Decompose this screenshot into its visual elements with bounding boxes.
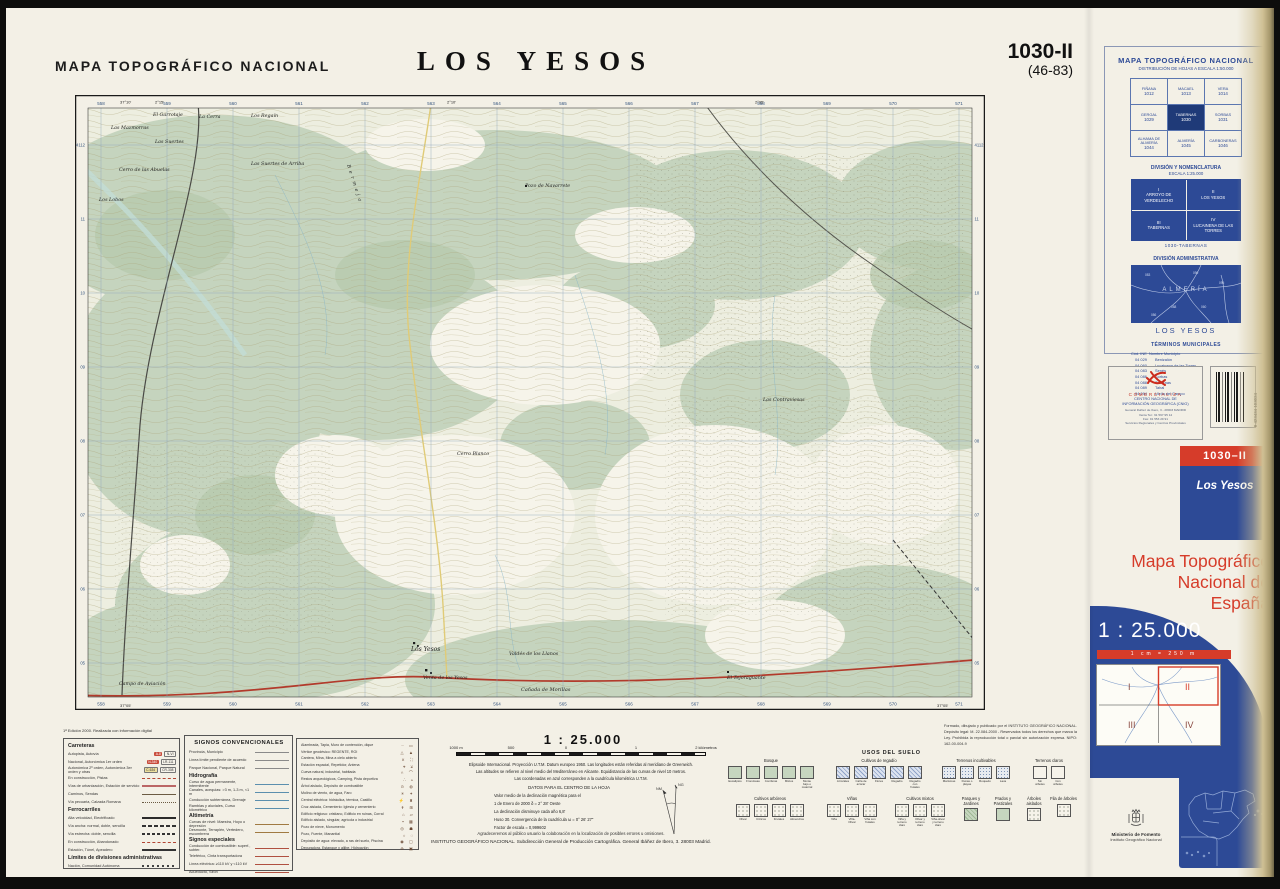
svg-text:561: 561 <box>295 101 303 106</box>
landuse-group: Terrenos incultivablesMarismasDunas o pl… <box>932 759 1020 786</box>
legend-item: Curvas de nivel: Maestra, Hoyo o depresi… <box>189 820 289 828</box>
svg-text:NM: NM <box>656 787 662 791</box>
nomenclatura-cell: IILOS YESOS <box>1187 180 1241 210</box>
footer-note: Agradeceremos al público usuario la cola… <box>221 831 921 836</box>
svg-text:569: 569 <box>823 702 831 707</box>
legend-symbol-item: Cruz aislada, Cementerio: Iglesia y ceme… <box>301 804 415 811</box>
svg-text:09: 09 <box>975 365 980 370</box>
landuse-group-name: Terrenos incultivables <box>932 759 1020 764</box>
landuse-swatch: Marismas <box>942 766 956 786</box>
legend-signs-box: SIGNOS CONVENCIONALESProvincia, Municipi… <box>184 735 293 871</box>
scale-label: 2 kilómetros <box>695 745 717 750</box>
landuse-group: Prados y Pastizales <box>988 797 1018 821</box>
edition-note: 1ª Edición 2000. Realizada con informaci… <box>63 728 152 733</box>
landuse-swatch-label: Viña-olivar y terreno claro <box>931 818 945 828</box>
landuse-swatch: Cítricos <box>754 804 768 821</box>
landuse-swatch: Almendros <box>790 804 804 821</box>
svg-text:10: 10 <box>80 291 85 296</box>
road-number-badge: A-8 <box>154 752 162 757</box>
svg-text:564: 564 <box>493 101 501 106</box>
legend-item: Conducción subterránea, Drenaje <box>189 796 289 804</box>
svg-text:08: 08 <box>975 439 980 444</box>
svg-text:563: 563 <box>427 702 435 707</box>
landuse-group: Fila de árboles <box>1050 797 1077 817</box>
svg-text:07: 07 <box>975 513 980 518</box>
landuse-swatch: Regadío <box>890 766 904 790</box>
landuse-swatch <box>964 808 978 821</box>
legend-symbol-glyphs: ⚡ ♜ <box>385 798 415 804</box>
svg-text:568: 568 <box>757 702 765 707</box>
landuse-swatch: Regadío con frutales <box>908 766 922 790</box>
legend-item: Vía ancha: normal, doble, sencilla <box>68 822 176 830</box>
landuse-group-name: Fila de árboles <box>1050 797 1077 802</box>
landuse-swatch: Olivar <box>736 804 750 821</box>
svg-text:560: 560 <box>229 702 237 707</box>
landuse-swatch: Frondosas <box>746 766 760 790</box>
svg-text:563: 563 <box>427 101 435 106</box>
landuse-group-name: Bosque <box>718 759 824 764</box>
quadrant-diagram: I II III IV <box>1096 664 1221 746</box>
landuse-group: ViñasViñaViña-OlivarViña con frutales <box>820 797 884 824</box>
legend-symbol-item: Árbol aislado, Depósito de combustible⊙ … <box>301 783 415 790</box>
admin-code: 088 <box>1171 305 1176 309</box>
admin-code: 086 <box>1151 313 1156 317</box>
map-place-label: Pozo de Navarrete <box>524 183 570 189</box>
legend-symbol-item: Edificio aislado, singular, agrícola o i… <box>301 818 415 825</box>
legend-group-title: Carreteras <box>68 743 176 749</box>
legend-item: Provincia, Municipio <box>189 748 289 756</box>
legend-symbol-glyphs: ✝ ⊞ <box>385 805 415 810</box>
page-curl-edge <box>1237 8 1274 877</box>
map-place-label: El Garrotaje <box>152 112 183 118</box>
landuse-group-name: Viñas <box>820 797 884 802</box>
landuse-swatch: Viña <box>827 804 841 824</box>
landuse-swatch <box>1027 808 1041 821</box>
landuse-swatch-label: Viña <box>827 818 841 821</box>
imprint-block: Formado, dibujado y publicado por el INS… <box>944 723 1077 747</box>
legend-item: Canales, acequias: >3 m, 1-3 m, <1 m <box>189 788 289 796</box>
svg-text:NG: NG <box>678 783 684 787</box>
landuse-swatch <box>1057 804 1071 817</box>
legend-group-title: Ferrocarriles <box>68 807 176 813</box>
legend-symbol-item: Vértice geodésico: REGENTE, ROI△ ▲ <box>301 749 415 756</box>
legend-item: Línea eléctrica: ≥110 kV y <110 kV <box>189 860 289 868</box>
map-place-label: La Cerra <box>198 114 221 120</box>
distribution-cell: GERGAL1029 <box>1131 105 1168 131</box>
landuse-swatch-label: Mixtos <box>782 780 796 783</box>
scale-value: 1 : 25.000 <box>1098 619 1201 643</box>
landuse-group: Cultivos mixtosViña y terreno claroOliva… <box>886 797 954 827</box>
svg-text:09: 09 <box>80 365 85 370</box>
legend-symbol-glyphs: ⌂ ▱ <box>385 812 415 817</box>
sheet-number-block: 1030-II (46-83) <box>961 41 1073 78</box>
landuse-swatch: Olivar y terreno claro <box>913 804 927 828</box>
landuse-swatch: Frutales <box>772 804 786 821</box>
legend-item: Alta velocidad, Electrificado <box>68 814 176 822</box>
svg-text:566: 566 <box>625 101 633 106</box>
landuse-group: Cultivos de regadíoArrozalesCaña de azúc… <box>828 759 930 789</box>
landuse-swatch: Roquedo <box>978 766 992 786</box>
landuse-swatch: Arrozales <box>836 766 850 790</box>
road-number-badge: N-VI <box>164 751 176 758</box>
legend-symbol-item: Alambrada, Tapia, Muro de contención, di… <box>301 742 415 749</box>
landuse-swatch <box>996 808 1010 821</box>
signs-title: SIGNOS CONVENCIONALES <box>189 740 289 746</box>
map-place-label: Cerro de las Abuelas <box>119 167 170 173</box>
road-number-badge: C-634 <box>144 767 158 774</box>
landuse-swatch-label: Coníferas <box>764 780 778 783</box>
landuse-group: Terrenos clarosSin árbolesCon árboles <box>1022 759 1076 786</box>
map-place-label: Valdés de los Llanos <box>509 650 559 657</box>
landuse-group: Parques y Jardines <box>956 797 986 821</box>
ministry-block: Ministerio de Fomento Instituto Geográfi… <box>1086 808 1186 842</box>
svg-text:564: 564 <box>493 702 501 707</box>
legend-item: Vía pecuaria, Calzada Romana <box>68 798 176 806</box>
distribution-cell: MACAEL1013 <box>1168 79 1205 105</box>
map-place-label: Cerro Blanco <box>457 451 489 457</box>
svg-text:4112: 4112 <box>975 143 985 148</box>
svg-text:567: 567 <box>691 101 699 106</box>
landuse-swatch-label: Almendros <box>790 818 804 821</box>
cnig-swoosh-icon <box>1145 370 1167 386</box>
datos-title: DATOS PARA EL CENTRO DE LA HOJA <box>494 785 644 790</box>
legend-item: Conducción de combustible: superf., subt… <box>189 844 289 852</box>
landuse-group-name: Prados y Pastizales <box>988 797 1018 806</box>
admin-code: 060 <box>1201 305 1206 309</box>
legend-symbol-item: Molino de viento, de agua, Faro✳ ✦ <box>301 790 415 797</box>
svg-text:10: 10 <box>975 291 980 296</box>
sheet-distribution-grid: FIÑANA1012MACAEL1013VERA1014GERGAL1029TA… <box>1130 78 1242 157</box>
landuse-swatch-label: Olivar <box>736 818 750 821</box>
landuse-group: Cultivos arbóreosOlivarCítricosFrutalesA… <box>722 797 818 821</box>
institute-name: Instituto Geográfico Nacional <box>1086 837 1186 842</box>
svg-text:06: 06 <box>80 587 85 592</box>
map-place-label: Los Lobos <box>98 197 124 203</box>
scale-bar-labels: 1000 m500012 kilómetros <box>456 745 706 751</box>
landuse-swatch-label: Arrozales <box>836 780 850 783</box>
distribution-cell: VERA1014 <box>1205 79 1242 105</box>
legend-symbol-glyphs: ▪ ▦ <box>385 819 415 824</box>
admin-code: 083 <box>1145 273 1150 277</box>
landuse-swatch-label: Frondosas <box>746 780 760 783</box>
map-place-label: Los Regaín <box>250 112 278 119</box>
cnig-org-2: INFORMACIÓN GEOGRÁFICA (CNIG) <box>1109 402 1202 407</box>
scale-label: 1000 m <box>449 745 462 750</box>
svg-text:2°05': 2°05' <box>755 100 764 105</box>
cnig-address: General Ibáñez de Ibero, 3 - 28003 MADRI… <box>1109 408 1202 425</box>
svg-text:05: 05 <box>80 661 85 666</box>
svg-text:37°05': 37°05' <box>937 703 948 708</box>
landuse-title: USOS DEL SUELO <box>862 750 982 756</box>
map-place-label: Campo de Aviación <box>119 680 166 687</box>
legend-item: Ramblas y aluviales, Curso kilométrico <box>189 804 289 812</box>
landuse-swatch-label: Dunas o playas <box>960 780 974 786</box>
admin-code: 095 <box>1219 281 1224 285</box>
legend-item: En construcción, Abandonado <box>68 838 176 846</box>
nomenclatura-cell: IVLUCAINENA DE LAS TORRES <box>1187 211 1241 241</box>
svg-text:560: 560 <box>229 101 237 106</box>
svg-text:562: 562 <box>361 101 369 106</box>
svg-text:2°10': 2°10' <box>447 100 456 105</box>
distribution-cell: CARBONERAS1046 <box>1205 131 1242 157</box>
scale-label: 0 <box>565 745 567 750</box>
legend-symbol-glyphs: ⊕ ▣ <box>385 846 415 851</box>
admin-region-label: ALMERÍA <box>1131 287 1241 293</box>
landuse-swatch-label: Viña y terreno claro <box>895 818 909 828</box>
svg-text:567: 567 <box>691 702 699 707</box>
svg-text:559: 559 <box>163 101 171 106</box>
legend-item: Estación, Túnel, Apeadero <box>68 846 176 854</box>
landuse-swatch-label: Marismas <box>942 780 956 783</box>
svg-text:561: 561 <box>295 702 303 707</box>
landuse-swatch-label: Eucaliptos <box>728 780 742 783</box>
landuse-swatch: Eucaliptos <box>728 766 742 790</box>
svg-text:562: 562 <box>361 702 369 707</box>
topographic-map: El GarrotajeLa CerraLos RegaínLas Mazmor… <box>75 95 985 710</box>
road-number-badge: CR-308 <box>160 767 176 774</box>
distribution-cell: ALHAMA DE ALMERÍA1044 <box>1131 131 1168 157</box>
landuse-swatch: Sin árboles <box>1033 766 1047 786</box>
svg-text:570: 570 <box>889 702 897 707</box>
distribution-cell: FIÑANA1012 <box>1131 79 1168 105</box>
cnig-panel: COMERCIALIZA CENTRO NACIONAL DE INFORMAC… <box>1108 366 1203 440</box>
footer-imprint: INSTITUTO GEOGRÁFICO NACIONAL. Subdirecc… <box>181 839 961 844</box>
svg-text:11: 11 <box>81 217 86 222</box>
legend-symbol-glyphs: ⊙ ◍ <box>385 784 415 789</box>
landuse-swatch: Lava <box>996 766 1010 786</box>
landuse-swatch-label: Flores <box>872 780 886 783</box>
svg-text:05: 05 <box>975 661 980 666</box>
admin-code: 090 <box>1193 271 1198 275</box>
legend-roads-box: CarreterasAutopista, AutovíaA-8N-VINacio… <box>63 738 180 869</box>
sheet-code: (46-83) <box>961 63 1073 78</box>
svg-text:37°10': 37°10' <box>120 100 131 105</box>
landuse-swatch-label: Cítricos <box>754 818 768 821</box>
nomenclatura-grid: IARROYO DE VERDELECHOIILOS YESOSIIITABER… <box>1131 179 1241 241</box>
landuse-swatch: Caña de azúcar <box>854 766 868 790</box>
legend-item: Autonómica 2º orden, Autonómica 3er orde… <box>68 766 176 774</box>
landuse-swatch-label: Regadío <box>890 780 904 783</box>
map-place-label: Venta de los Yesos <box>423 675 468 681</box>
landuse-swatch: Dunas o playas <box>960 766 974 786</box>
svg-text:2°15': 2°15' <box>155 100 164 105</box>
svg-text:III: III <box>1128 720 1136 730</box>
svg-text:571: 571 <box>955 702 963 707</box>
svg-text:565: 565 <box>559 101 567 106</box>
legend-item: Línea límite pendiente de acuerdo <box>189 756 289 764</box>
landuse-swatch: Coníferas <box>764 766 778 790</box>
landuse-swatch: Viña-olivar y terreno claro <box>931 804 945 828</box>
svg-text:558: 558 <box>97 101 105 106</box>
svg-text:566: 566 <box>625 702 633 707</box>
scale-equivalence: 1 cm = 250 m <box>1097 650 1231 659</box>
map-place-label: Los Yesos <box>410 646 440 653</box>
legend-symbol-item: Depuradora, Estanque y aljibe, Hidroavió… <box>301 845 415 852</box>
svg-text:11: 11 <box>975 217 980 222</box>
landuse-group-name: Cultivos de regadío <box>828 759 930 764</box>
legend-symbol-item: Central eléctrica: hidráulica, térmica, … <box>301 797 415 804</box>
landuse-group-name: Cultivos arbóreos <box>722 797 818 802</box>
svg-text:06: 06 <box>975 587 980 592</box>
svg-text:570: 570 <box>889 101 897 106</box>
road-number-badge: N-340 <box>147 760 159 765</box>
svg-text:571: 571 <box>955 101 963 106</box>
map-place-label: Las Mazmorras <box>110 125 149 131</box>
legend-symbol-glyphs: ◎ ☗ <box>385 826 415 831</box>
sheet-center-data: DATOS PARA EL CENTRO DE LA HOJA Valor me… <box>494 785 644 832</box>
nomenclatura-cell: IIITABERNAS <box>1132 211 1186 241</box>
landuse-swatch-label: Viña con frutales <box>863 818 877 824</box>
landuse-swatch-label: Roquedo <box>978 780 992 783</box>
distribution-cell: ALMERÍA1045 <box>1168 131 1205 157</box>
svg-text:4112: 4112 <box>76 143 86 148</box>
legend-symbol-glyphs: △ ▲ <box>385 750 415 755</box>
admin-map: ALMERÍA 083090095088060086 <box>1131 265 1241 323</box>
legend-symbol-item: Edificio religioso: cristiano, Edificio … <box>301 811 415 818</box>
svg-text:559: 559 <box>163 702 171 707</box>
legend-group-title: Límites de divisiones administrativas <box>68 855 176 861</box>
svg-text:I: I <box>1128 682 1131 692</box>
landuse-swatch: Flores <box>872 766 886 790</box>
legend-item: Vía estrecha: doble, sencilla <box>68 830 176 838</box>
legend-symbol-glyphs: ✳ ✦ <box>385 791 415 796</box>
legend-item: Nacional, Autonómica 1er ordenN-340LR-11… <box>68 758 176 766</box>
svg-text:37°05': 37°05' <box>120 703 131 708</box>
landuse-swatch: Monte bajo o matorral <box>800 766 814 790</box>
svg-text:II: II <box>1185 682 1190 692</box>
landuse-group-name: Terrenos claros <box>1022 759 1076 764</box>
legend-item: Parque Nacional, Parque Natural <box>189 764 289 772</box>
map-place-label: Las Suertes <box>154 139 184 145</box>
legend-item: Vías de urbanización, Estación de servic… <box>68 782 176 790</box>
svg-text:07: 07 <box>80 513 85 518</box>
landuse-swatch-label: Viña-Olivar <box>845 818 859 824</box>
landuse-swatch-label: Regadío con frutales <box>908 780 922 790</box>
svg-text:IV: IV <box>1185 720 1194 730</box>
landuse-swatch-label: Lava <box>996 780 1010 783</box>
landuse-group: BosqueEucaliptosFrondosasConíferasMixtos… <box>718 759 824 789</box>
landuse-group-name: Parques y Jardines <box>956 797 986 806</box>
landuse-swatch: Viña y terreno claro <box>895 804 909 828</box>
legend-item: Acueducto, Sifón <box>189 868 289 876</box>
page-title: LOS YESOS <box>81 46 991 77</box>
svg-text:565: 565 <box>559 702 567 707</box>
map-place-label: Las Suertes de Arriba <box>250 161 304 167</box>
landuse-group-name: Cultivos mixtos <box>886 797 954 802</box>
scale-label: 1 <box>635 745 637 750</box>
legend-item: Caminos, Sendas <box>68 790 176 798</box>
legend-item: Curso de agua permanente, intermitente <box>189 780 289 788</box>
landuse-swatch: Con árboles <box>1051 766 1065 786</box>
legend-item: Teleférico, Cinta transportadora <box>189 852 289 860</box>
svg-text:569: 569 <box>823 101 831 106</box>
map-place-label: Cañada de Morillas <box>521 686 571 693</box>
map-sheet: MAPA TOPOGRÁFICO NACIONAL LOS YESOS 1030… <box>6 8 1274 877</box>
legend-item: Autopista, AutovíaA-8N-VI <box>68 750 176 758</box>
map-place-label: El Tejoraguante <box>726 675 766 681</box>
photo-background: MAPA TOPOGRÁFICO NACIONAL LOS YESOS 1030… <box>0 0 1280 889</box>
svg-text:08: 08 <box>80 439 85 444</box>
distribution-cell: TABERNAS1030 <box>1168 105 1205 131</box>
landuse-swatch: Viña-Olivar <box>845 804 859 824</box>
paper-fold-shadow <box>1084 8 1094 877</box>
sheet-number: 1030-II <box>961 41 1073 63</box>
legend-item: Nación, Comunidad Autónoma <box>68 862 176 870</box>
landuse-swatch-label: Olivar y terreno claro <box>913 818 927 828</box>
legend-symbol-glyphs: ┄ ▭ <box>385 743 415 748</box>
distribution-cell: SORBAS1031 <box>1205 105 1242 131</box>
landuse-group-name: Árboles aislados <box>1020 797 1048 806</box>
coat-of-arms-icon <box>1126 808 1146 830</box>
road-number-badge: LR-111 <box>161 759 176 766</box>
map-place-label: Las Contraviesas <box>762 397 805 403</box>
landuse-swatch-label: Con árboles <box>1051 780 1065 786</box>
legend-item: En construcción, Pistas <box>68 774 176 782</box>
nomenclatura-cell: IARROYO DE VERDELECHO <box>1132 180 1186 210</box>
svg-text:558: 558 <box>97 702 105 707</box>
landuse-swatch-label: Sin árboles <box>1033 780 1047 786</box>
landuse-swatch-label: Caña de azúcar <box>854 780 868 786</box>
scale-bar <box>456 752 706 756</box>
landuse-swatch-label: Monte bajo o matorral <box>800 780 814 790</box>
landuse-swatch-label: Frutales <box>772 818 786 821</box>
landuse-swatch: Mixtos <box>782 766 796 790</box>
landuse-group: Árboles aislados <box>1020 797 1048 821</box>
landuse-swatch: Viña con frutales <box>863 804 877 824</box>
scale-label: 500 <box>508 745 515 750</box>
